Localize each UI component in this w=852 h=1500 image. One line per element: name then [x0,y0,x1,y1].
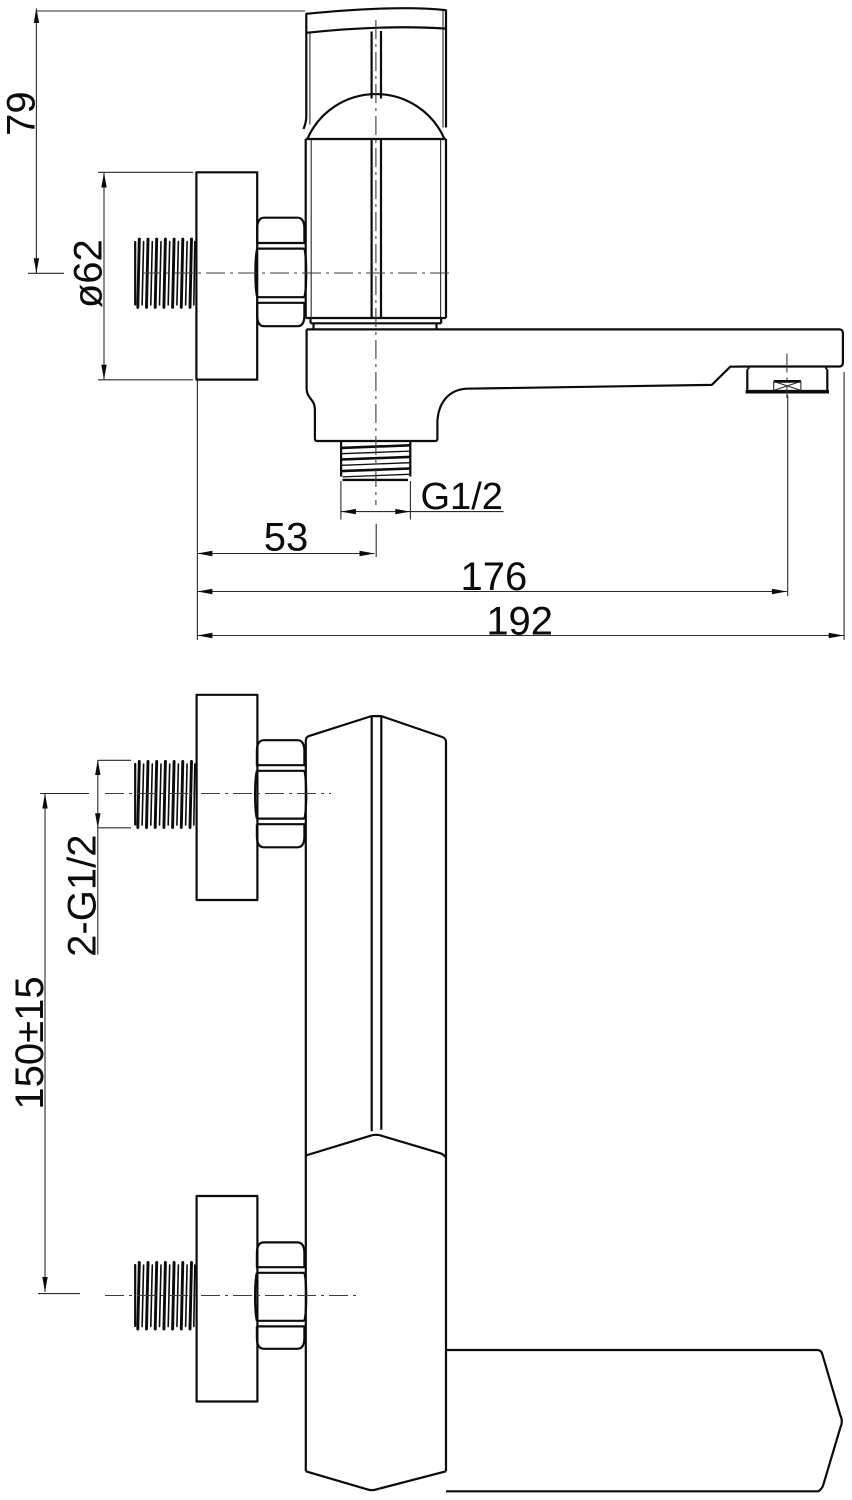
svg-text:ø62: ø62 [67,239,111,308]
svg-text:176: 176 [461,555,528,599]
svg-text:2-G1/2: 2-G1/2 [60,835,104,957]
svg-text:192: 192 [486,599,553,643]
svg-text:79: 79 [0,91,44,136]
svg-text:G1/2: G1/2 [421,476,503,518]
svg-text:150±15: 150±15 [8,976,52,1109]
svg-text:53: 53 [264,516,309,560]
